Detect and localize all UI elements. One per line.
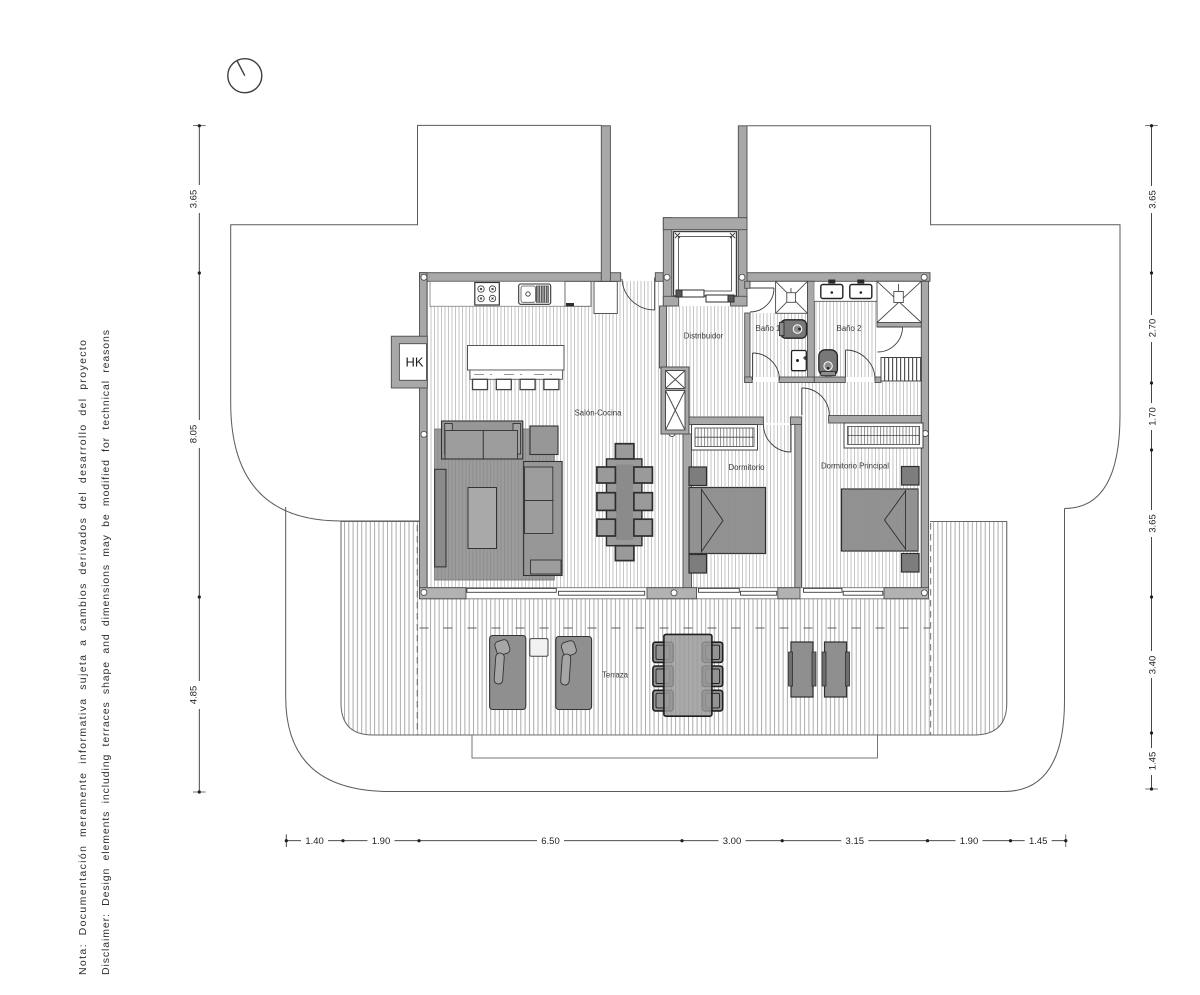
svg-text:6.50: 6.50 (541, 836, 560, 847)
svg-text:Distribuidor: Distribuidor (684, 332, 724, 341)
svg-text:Baño 2: Baño 2 (837, 324, 862, 333)
svg-text:1.45: 1.45 (1148, 752, 1159, 771)
svg-text:8.05: 8.05 (189, 425, 200, 444)
svg-text:HK: HK (405, 355, 423, 370)
svg-text:Disclaimer: Design elements in: Disclaimer: Design elements including te… (100, 330, 112, 975)
svg-text:4.85: 4.85 (189, 686, 200, 705)
svg-text:3.65: 3.65 (1148, 190, 1159, 209)
svg-text:1.90: 1.90 (372, 836, 391, 847)
svg-text:Baño 1: Baño 1 (756, 324, 781, 333)
svg-text:3.65: 3.65 (1148, 514, 1159, 533)
svg-text:Dormitorio Principal: Dormitorio Principal (821, 462, 889, 471)
svg-text:Salón-Cocina: Salón-Cocina (575, 409, 622, 418)
svg-text:Nota: Documentación meramente: Nota: Documentación meramente informativ… (77, 340, 89, 975)
svg-text:1.40: 1.40 (305, 836, 324, 847)
svg-text:3.15: 3.15 (846, 836, 865, 847)
svg-text:2.70: 2.70 (1148, 319, 1159, 338)
svg-text:1.90: 1.90 (960, 836, 979, 847)
svg-text:3.00: 3.00 (723, 836, 742, 847)
svg-text:3.40: 3.40 (1148, 656, 1159, 675)
svg-text:3.65: 3.65 (189, 190, 200, 209)
svg-text:1.70: 1.70 (1148, 407, 1159, 426)
svg-text:Dormitorio: Dormitorio (729, 463, 766, 472)
svg-text:Terraza: Terraza (602, 670, 629, 679)
svg-text:1.45: 1.45 (1029, 836, 1048, 847)
